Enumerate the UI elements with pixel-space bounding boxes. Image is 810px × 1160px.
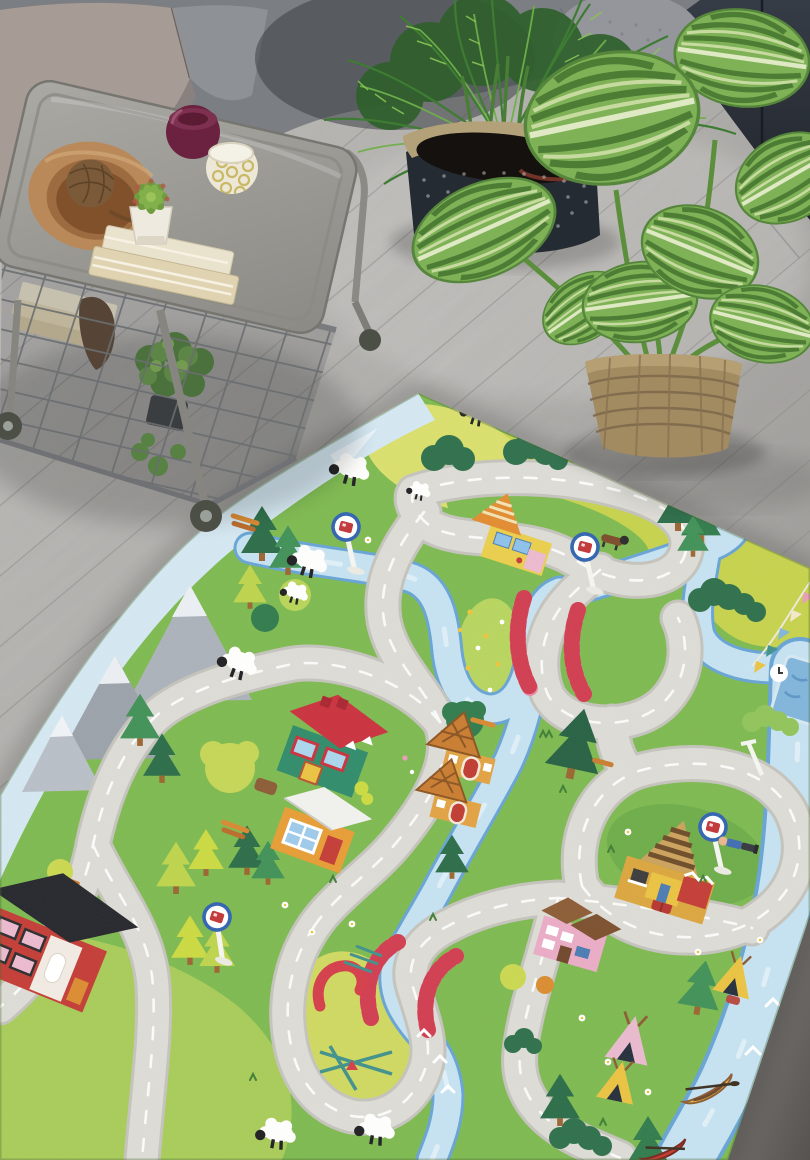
calathea-basket (585, 354, 742, 458)
photo-scene (0, 0, 810, 1160)
